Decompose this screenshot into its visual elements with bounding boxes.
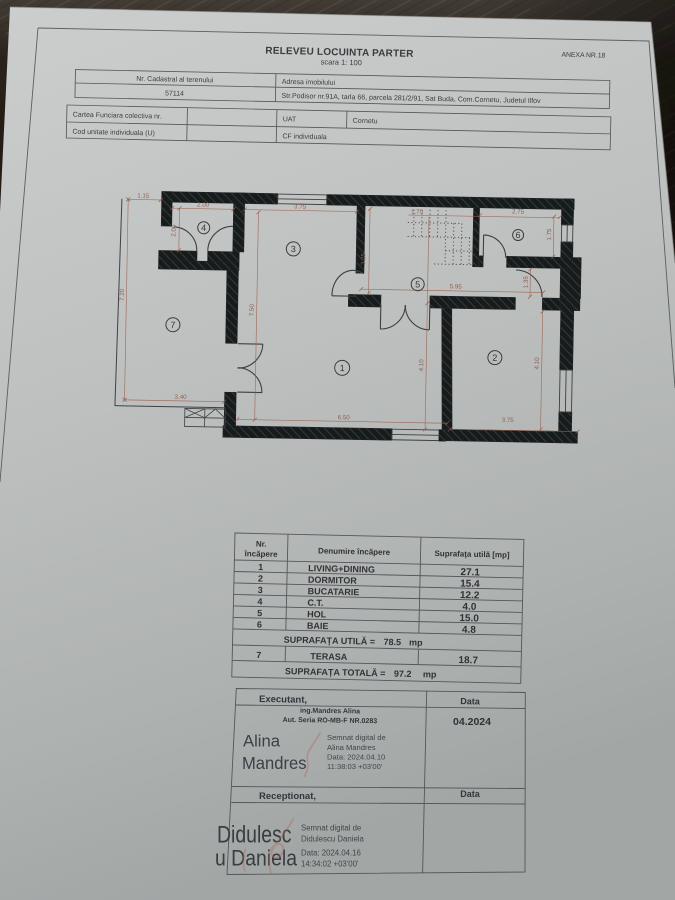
svg-text:7.50: 7.50 — [249, 304, 256, 317]
svg-text:SUPRAFAȚA UTILĂ =: SUPRAFAȚA UTILĂ = — [284, 635, 376, 647]
svg-text:2: 2 — [258, 574, 263, 584]
svg-text:1: 1 — [340, 363, 345, 373]
svg-text:Data: 2024.04.16: Data: 2024.04.16 — [301, 849, 361, 858]
svg-text:1.15: 1.15 — [137, 193, 150, 200]
svg-text:2.75: 2.75 — [512, 208, 525, 215]
svg-text:HOL: HOL — [307, 609, 327, 619]
svg-text:78.5: 78.5 — [383, 637, 401, 647]
svg-text:2.00: 2.00 — [197, 202, 210, 209]
svg-text:Mandres: Mandres — [242, 753, 307, 773]
svg-text:3: 3 — [258, 585, 263, 595]
svg-text:4.8: 4.8 — [462, 625, 477, 636]
svg-text:C.T.: C.T. — [307, 598, 323, 608]
svg-text:u Daniela: u Daniela — [215, 846, 297, 871]
svg-text:Semnat digital de: Semnat digital de — [301, 824, 361, 833]
svg-text:2: 2 — [492, 353, 497, 363]
svg-text:Denumire încăpere: Denumire încăpere — [318, 546, 391, 557]
svg-text:UAT: UAT — [283, 116, 297, 123]
svg-text:BAIE: BAIE — [307, 621, 329, 631]
svg-text:Didulescu Daniela: Didulescu Daniela — [301, 835, 365, 844]
svg-text:6: 6 — [257, 620, 262, 630]
svg-text:Adresa imobilului: Adresa imobilului — [282, 79, 336, 87]
svg-text:5: 5 — [415, 279, 420, 289]
svg-text:4.10: 4.10 — [418, 359, 425, 372]
svg-text:Suprafața utilă [mp]: Suprafața utilă [mp] — [434, 549, 510, 560]
svg-text:DORMITOR: DORMITOR — [308, 575, 358, 586]
svg-text:Executant,: Executant, — [259, 694, 307, 706]
svg-text:3.25: 3.25 — [360, 253, 367, 266]
svg-text:4.10: 4.10 — [534, 357, 541, 370]
svg-text:Receptionat,: Receptionat, — [259, 791, 316, 802]
svg-text:97.2: 97.2 — [394, 669, 412, 679]
svg-text:Data: Data — [460, 789, 481, 799]
svg-text:7: 7 — [256, 650, 261, 660]
svg-text:6.50: 6.50 — [338, 414, 351, 421]
svg-text:mp: mp — [423, 669, 437, 679]
svg-text:Data: Data — [460, 696, 481, 706]
svg-text:3: 3 — [291, 244, 296, 254]
svg-text:ANEXA NR.18: ANEXA NR.18 — [561, 52, 605, 60]
svg-text:15.4: 15.4 — [460, 579, 480, 590]
svg-text:încăpere: încăpere — [243, 549, 278, 559]
svg-text:1.70: 1.70 — [411, 209, 424, 216]
svg-text:3.75: 3.75 — [502, 417, 515, 424]
svg-text:Aut. Seria RO-MB-F NR.0283: Aut. Seria RO-MB-F NR.0283 — [283, 717, 378, 725]
svg-text:Cornetu: Cornetu — [353, 118, 378, 126]
svg-text:1: 1 — [258, 562, 263, 572]
svg-text:4: 4 — [257, 597, 262, 607]
svg-text:Semnat digital de: Semnat digital de — [327, 733, 386, 742]
svg-text:57114: 57114 — [165, 90, 184, 97]
svg-text:4: 4 — [201, 223, 206, 233]
svg-text:3.75: 3.75 — [294, 203, 307, 210]
svg-text:2.00: 2.00 — [171, 224, 178, 237]
svg-text:Data: 2024.04.10: Data: 2024.04.10 — [327, 753, 385, 762]
svg-text:BUCATARIE: BUCATARIE — [308, 586, 360, 597]
svg-text:5.95: 5.95 — [450, 283, 463, 290]
svg-text:7.20: 7.20 — [119, 288, 126, 301]
svg-text:18.7: 18.7 — [458, 655, 478, 666]
svg-text:1.75: 1.75 — [546, 228, 553, 241]
svg-text:6: 6 — [516, 230, 521, 240]
svg-text:mp: mp — [409, 637, 423, 647]
svg-text:LIVING+DINING: LIVING+DINING — [308, 563, 375, 574]
svg-text:15.0: 15.0 — [459, 613, 479, 624]
svg-text:12.2: 12.2 — [460, 590, 480, 601]
svg-text:11:38:03 +03'00': 11:38:03 +03'00' — [327, 762, 383, 771]
svg-text:scara 1: 100: scara 1: 100 — [321, 57, 362, 67]
svg-text:4.0: 4.0 — [462, 602, 477, 613]
svg-text:14:34:02 +03'00': 14:34:02 +03'00' — [301, 860, 359, 869]
svg-text:Alina Mandres: Alina Mandres — [327, 743, 376, 752]
svg-text:5: 5 — [257, 608, 262, 618]
svg-text:Nr.: Nr. — [256, 539, 267, 548]
svg-text:TERASA: TERASA — [310, 651, 348, 662]
svg-text:Alina: Alina — [243, 733, 281, 751]
svg-text:ing.Mandres Alina: ing.Mandres Alina — [300, 708, 360, 716]
svg-text:27.1: 27.1 — [460, 567, 480, 578]
svg-text:1.35: 1.35 — [523, 276, 530, 289]
svg-text:CF individuala: CF individuala — [282, 133, 327, 141]
svg-text:04.2024: 04.2024 — [453, 716, 491, 728]
svg-text:7: 7 — [170, 320, 175, 330]
svg-text:3.40: 3.40 — [175, 394, 188, 401]
